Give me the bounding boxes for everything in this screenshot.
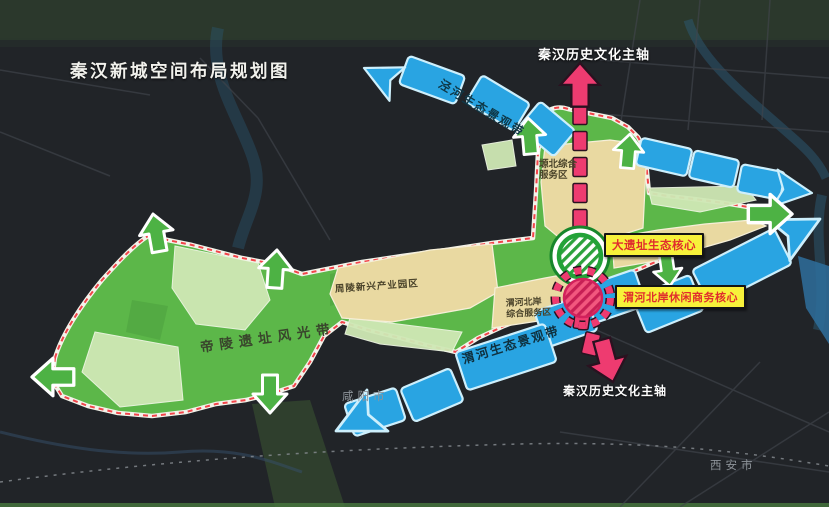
business-core-label: 渭河北岸休闲商务核心: [615, 285, 746, 309]
zone-yuanbei-label: 塬北综合 服务区: [539, 159, 577, 181]
xian-city-label: 西安市: [710, 457, 757, 473]
heritage-core-label: 大遗址生态核心: [604, 233, 704, 257]
north-green-band: [0, 0, 829, 40]
xianyang-city-label: 咸阳市: [342, 388, 389, 404]
bottom-green-strip: [0, 503, 829, 507]
planning-map: 秦汉新城空间布局规划图 秦汉历史文化主轴 秦汉历史文化主轴 泾河生态景观带 渭河…: [0, 0, 829, 507]
zone-yuanbei-line2: 服务区: [539, 170, 577, 181]
zone-yuanbei-line1: 塬北综合: [539, 159, 577, 170]
axis-top-label: 秦汉历史文化主轴: [538, 44, 650, 63]
map-title: 秦汉新城空间布局规划图: [70, 58, 290, 83]
axis-bottom-label: 秦汉历史文化主轴: [563, 382, 667, 399]
zone-weihe-service-label: 渭河北岸 综合服务区: [505, 297, 551, 320]
